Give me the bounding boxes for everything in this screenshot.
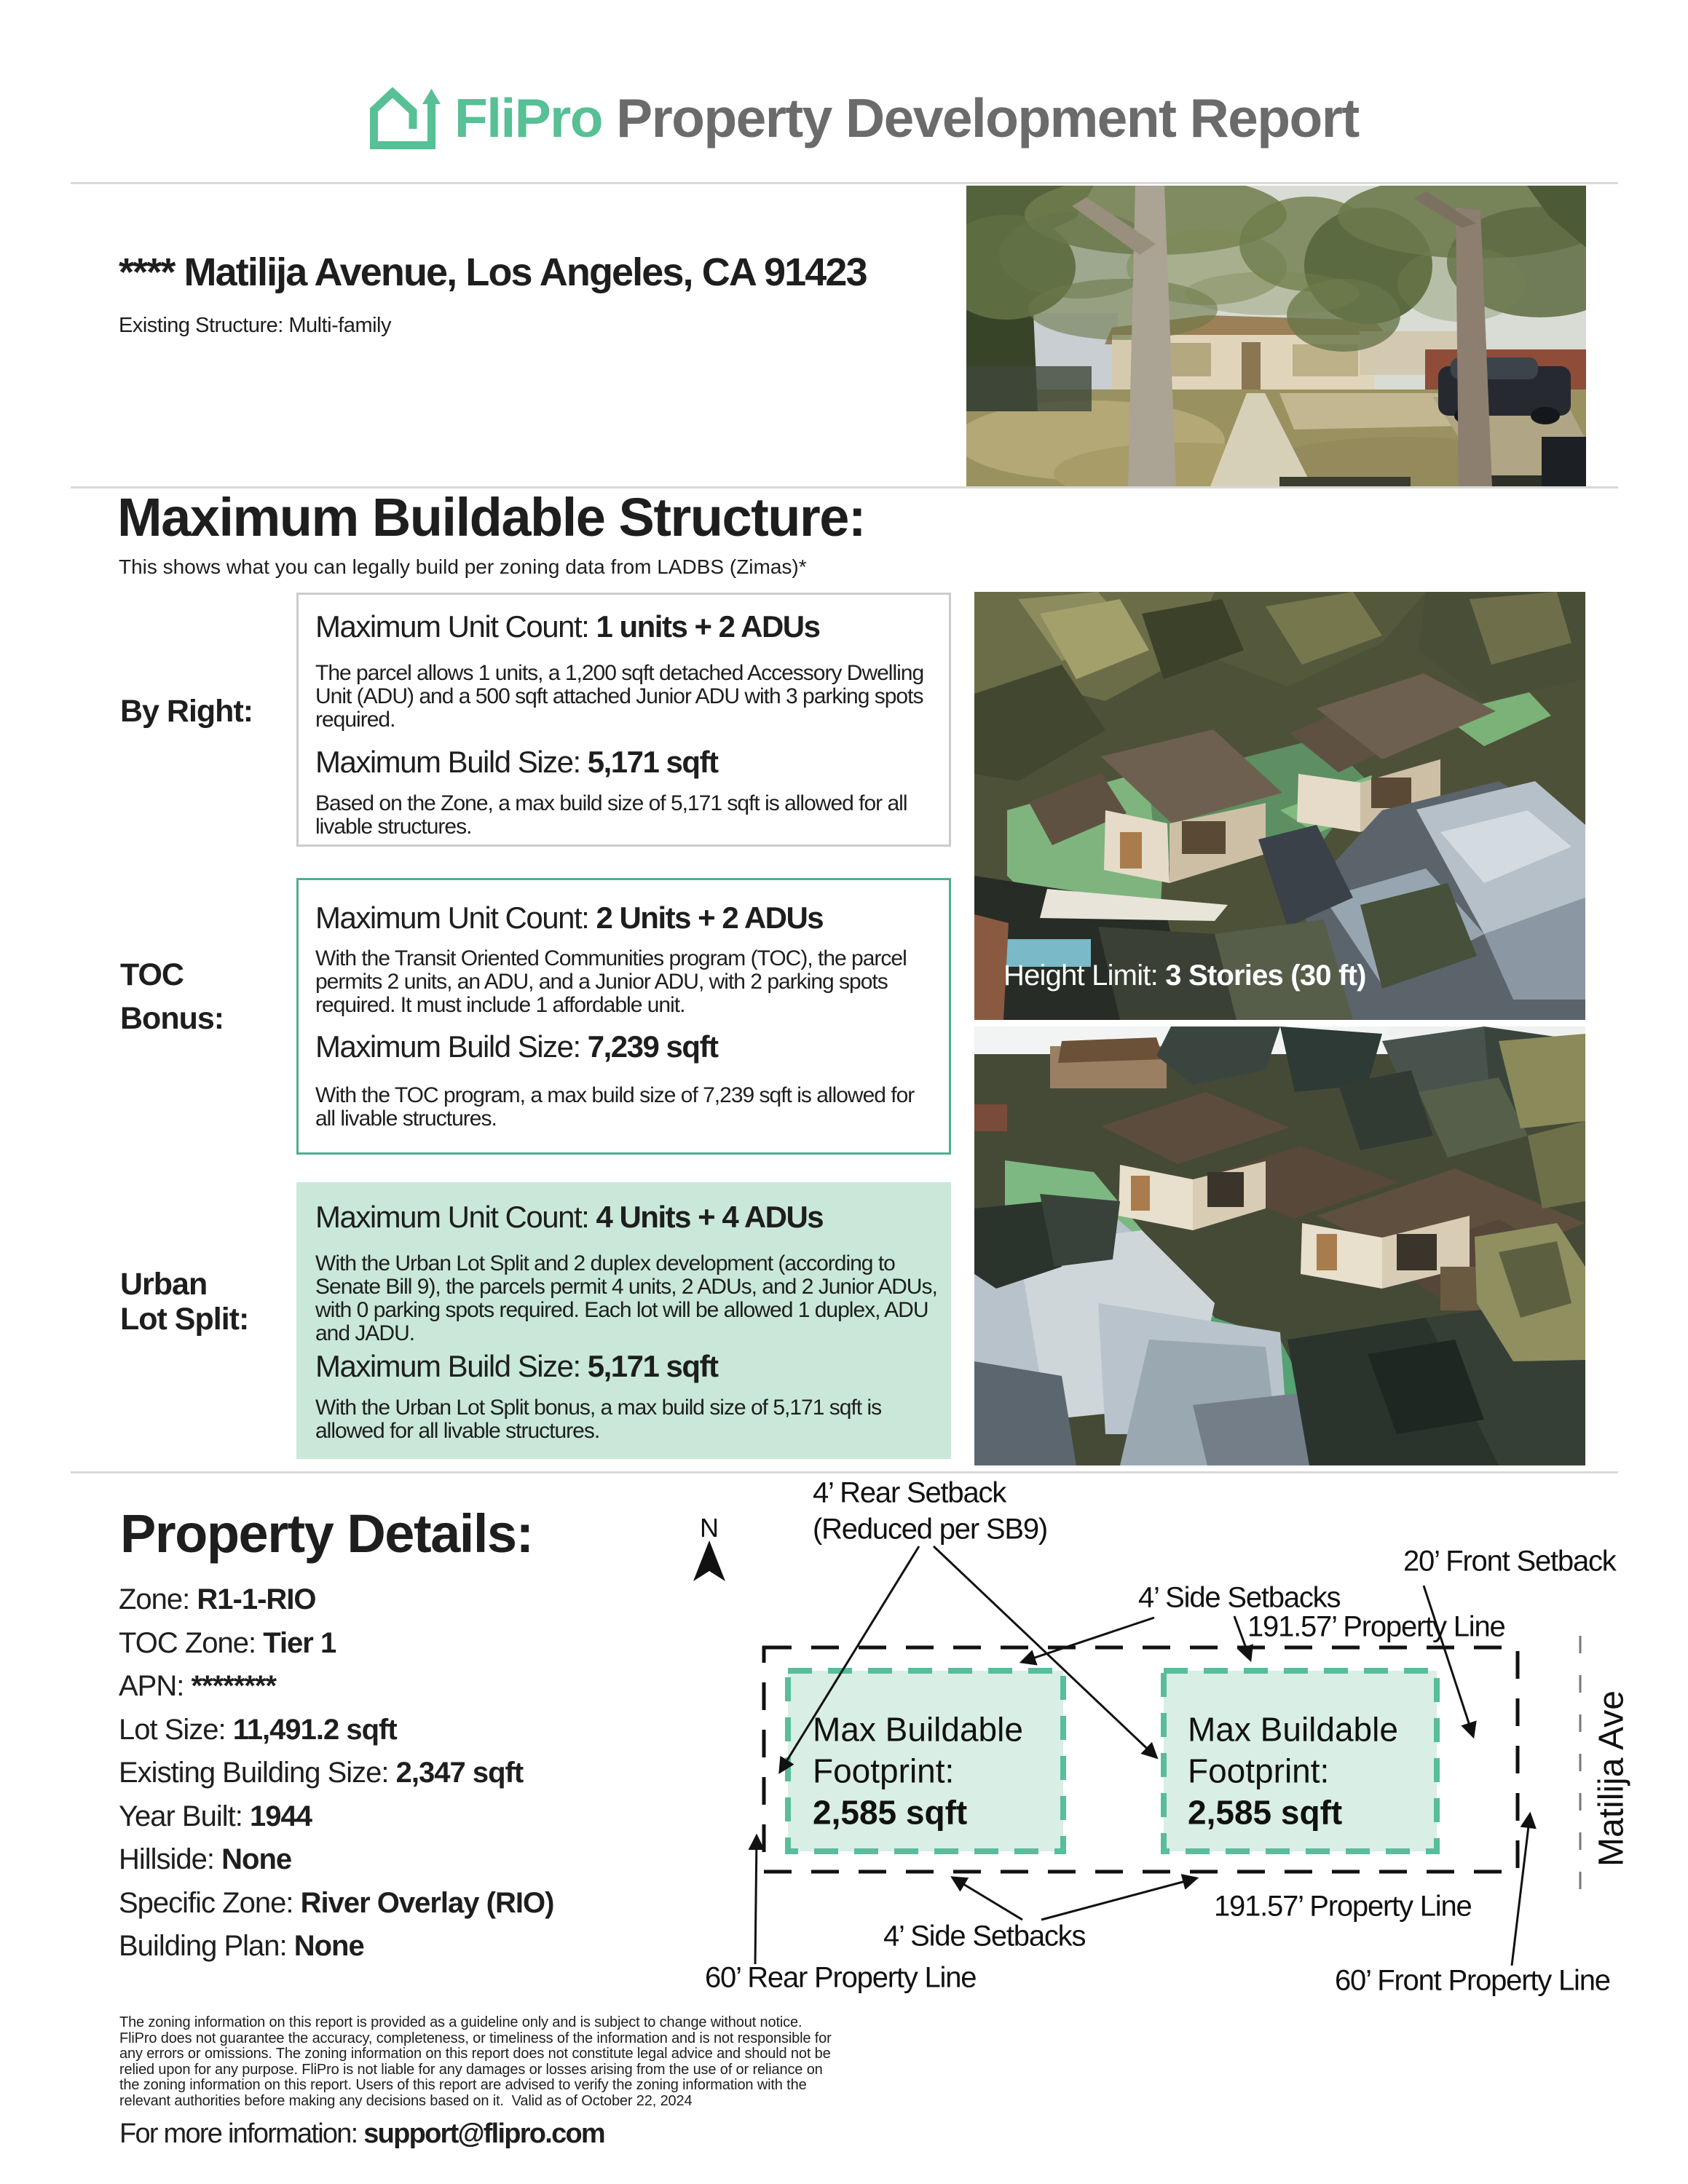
svg-text:Max Buildable: Max Buildable	[813, 1711, 1023, 1749]
svg-text:(Reduced per SB9): (Reduced per SB9)	[813, 1514, 1047, 1546]
svg-text:4’ Side Setbacks: 4’ Side Setbacks	[1138, 1582, 1340, 1614]
svg-text:Height Limit: 3 Stories (30 ft: Height Limit: 3 Stories (30 ft)	[1003, 960, 1366, 992]
svg-text:60’ Rear Property Line: 60’ Rear Property Line	[705, 1962, 976, 1994]
svg-text:Matilija Ave: Matilija Ave	[1593, 1690, 1631, 1867]
svg-text:2,585 sqft: 2,585 sqft	[1188, 1794, 1342, 1832]
svg-text:Footprint:: Footprint:	[813, 1752, 954, 1790]
svg-text:191.57’ Property Line: 191.57’ Property Line	[1214, 1891, 1472, 1923]
svg-text:4’ Side Setbacks: 4’ Side Setbacks	[883, 1920, 1085, 1952]
svg-text:N: N	[700, 1513, 719, 1543]
svg-text:60’ Front Property Line: 60’ Front Property Line	[1335, 1965, 1610, 1997]
svg-text:20’ Front Setback: 20’ Front Setback	[1403, 1546, 1617, 1578]
svg-text:Footprint:: Footprint:	[1188, 1752, 1329, 1790]
svg-text:191.57’ Property Line: 191.57’ Property Line	[1247, 1611, 1505, 1643]
svg-text:4’ Rear Setback: 4’ Rear Setback	[813, 1477, 1007, 1509]
svg-text:Max Buildable: Max Buildable	[1188, 1711, 1398, 1749]
svg-text:2,585 sqft: 2,585 sqft	[813, 1794, 967, 1832]
